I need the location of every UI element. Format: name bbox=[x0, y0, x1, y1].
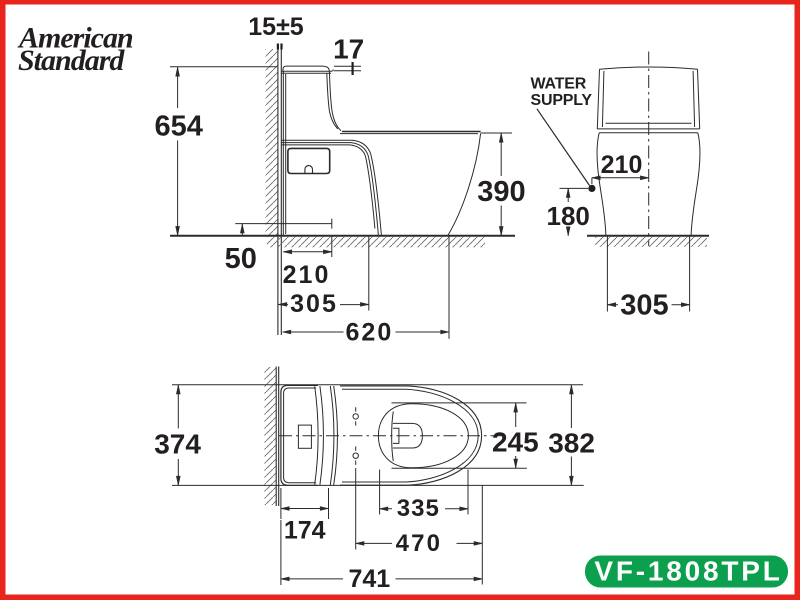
svg-text:WATER: WATER bbox=[531, 76, 587, 93]
svg-text:17: 17 bbox=[333, 34, 364, 65]
svg-text:210: 210 bbox=[283, 261, 331, 289]
svg-text:174: 174 bbox=[284, 517, 326, 545]
svg-text:470: 470 bbox=[396, 530, 443, 557]
svg-text:SUPPLY: SUPPLY bbox=[531, 92, 593, 109]
svg-text:382: 382 bbox=[548, 427, 595, 458]
svg-text:654: 654 bbox=[155, 111, 203, 143]
svg-text:50: 50 bbox=[225, 243, 257, 275]
svg-text:335: 335 bbox=[397, 495, 440, 522]
svg-text:210: 210 bbox=[601, 151, 643, 179]
svg-text:741: 741 bbox=[348, 565, 390, 593]
svg-text:305: 305 bbox=[290, 290, 338, 318]
svg-text:245: 245 bbox=[492, 426, 539, 457]
svg-text:374: 374 bbox=[154, 429, 201, 460]
svg-text:305: 305 bbox=[620, 290, 668, 322]
svg-text:390: 390 bbox=[477, 176, 525, 208]
svg-text:15±5: 15±5 bbox=[248, 13, 304, 41]
svg-text:Standard: Standard bbox=[18, 44, 125, 77]
svg-text:620: 620 bbox=[346, 318, 394, 346]
svg-text:VF-1808TPL: VF-1808TPL bbox=[594, 556, 782, 587]
